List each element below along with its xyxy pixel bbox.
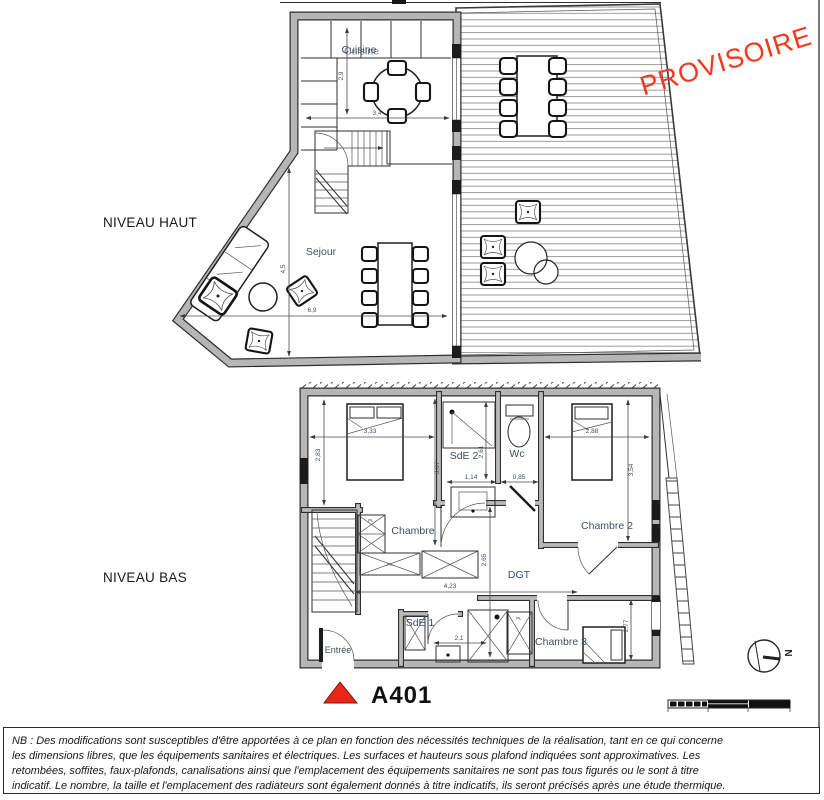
lower-plan: PL PL PL [300,382,694,669]
level-label-lower: NIVEAU BAS [103,570,187,585]
floor-plan-canvas: 2,9 3,4 4,5 6,9 Cuisine Cuisine Sejour [0,0,824,728]
dim-label: 2,88 [586,428,599,435]
staircase-lower [312,510,357,612]
closet-label: PL [387,562,393,567]
terrace-armchair [481,236,505,258]
note-box: NB : Des modifications sont susceptibles… [3,727,820,794]
room-label-dgt: DGT [508,569,531,581]
shower-sde1 [468,610,508,662]
note-line: les dimensions libres, que les équipemen… [12,749,811,764]
bed-chambre3 [583,627,625,663]
dim-label: 1,14 [465,474,478,481]
staircase-upper [315,131,390,214]
sejour-armchair [286,275,318,307]
dim-label: 2,61 [478,445,485,458]
room-label-entree: Entrée [325,645,352,655]
dim-label: 2,9 [338,71,345,80]
apartment-code: A401 [371,682,432,709]
section-mark [392,0,406,4]
bed-chambre2 [572,404,612,480]
room-label-chambre2: Chambre 2 [581,520,633,532]
terrace-armchair [481,263,505,285]
terrace-armchair [516,201,540,223]
dim-label: 2,83 [315,448,322,461]
dim-label: 3,54 [628,463,635,476]
north-compass: N [748,640,793,672]
dim-label: 4,23 [444,583,457,590]
room-label-chambre1: Chambre [391,525,434,537]
level-label-upper: NIVEAU HAUT [103,215,197,230]
bed-chambre1 [347,404,403,480]
dim-label: 3,33 [364,428,377,435]
balcony-railing [660,394,694,664]
sejour-armchair [245,328,272,354]
dim-label: 3,4 [372,110,381,117]
coffee-table [249,283,277,311]
apartment-marker-triangle [324,682,357,703]
note-line: retombées, soffites, faux-plafonds, cana… [12,764,811,779]
room-label-wc: Wc [509,448,524,460]
room-label-sde1: SdE 1 [406,617,435,629]
closet-label: PL [368,518,374,523]
terrace [452,4,701,361]
shower-sde2 [443,402,495,448]
dim-label: 0,85 [513,474,526,481]
room-label-chambre3: Chambre 3 [535,636,587,648]
apartment-marker: A401 [324,682,432,709]
room-label-cuisine-ghost: Cuisine [344,46,379,58]
scale-bar [668,700,790,712]
room-label-sde2: SdE 2 [450,450,479,462]
closet-label: PL [516,616,522,621]
dim-label: 3,07 [434,461,441,474]
note-line: NB : Des modifications sont susceptibles… [12,734,811,749]
dim-label: 2,65 [481,553,488,566]
plan-sheet: 2,9 3,4 4,5 6,9 Cuisine Cuisine Sejour [0,0,824,800]
dining-table [362,243,428,327]
dim-label: 4,5 [280,264,287,273]
north-label: N [782,649,793,656]
toilet-wc [506,405,533,447]
room-label-sejour: Sejour [306,246,337,258]
dim-label: 2,1 [454,635,463,642]
window-wall [452,44,461,358]
note-line: indicatif. Le nombre, la taille et l'emp… [12,779,811,794]
dim-label: 6,9 [307,307,316,314]
dim-label: 2,77 [623,619,630,632]
